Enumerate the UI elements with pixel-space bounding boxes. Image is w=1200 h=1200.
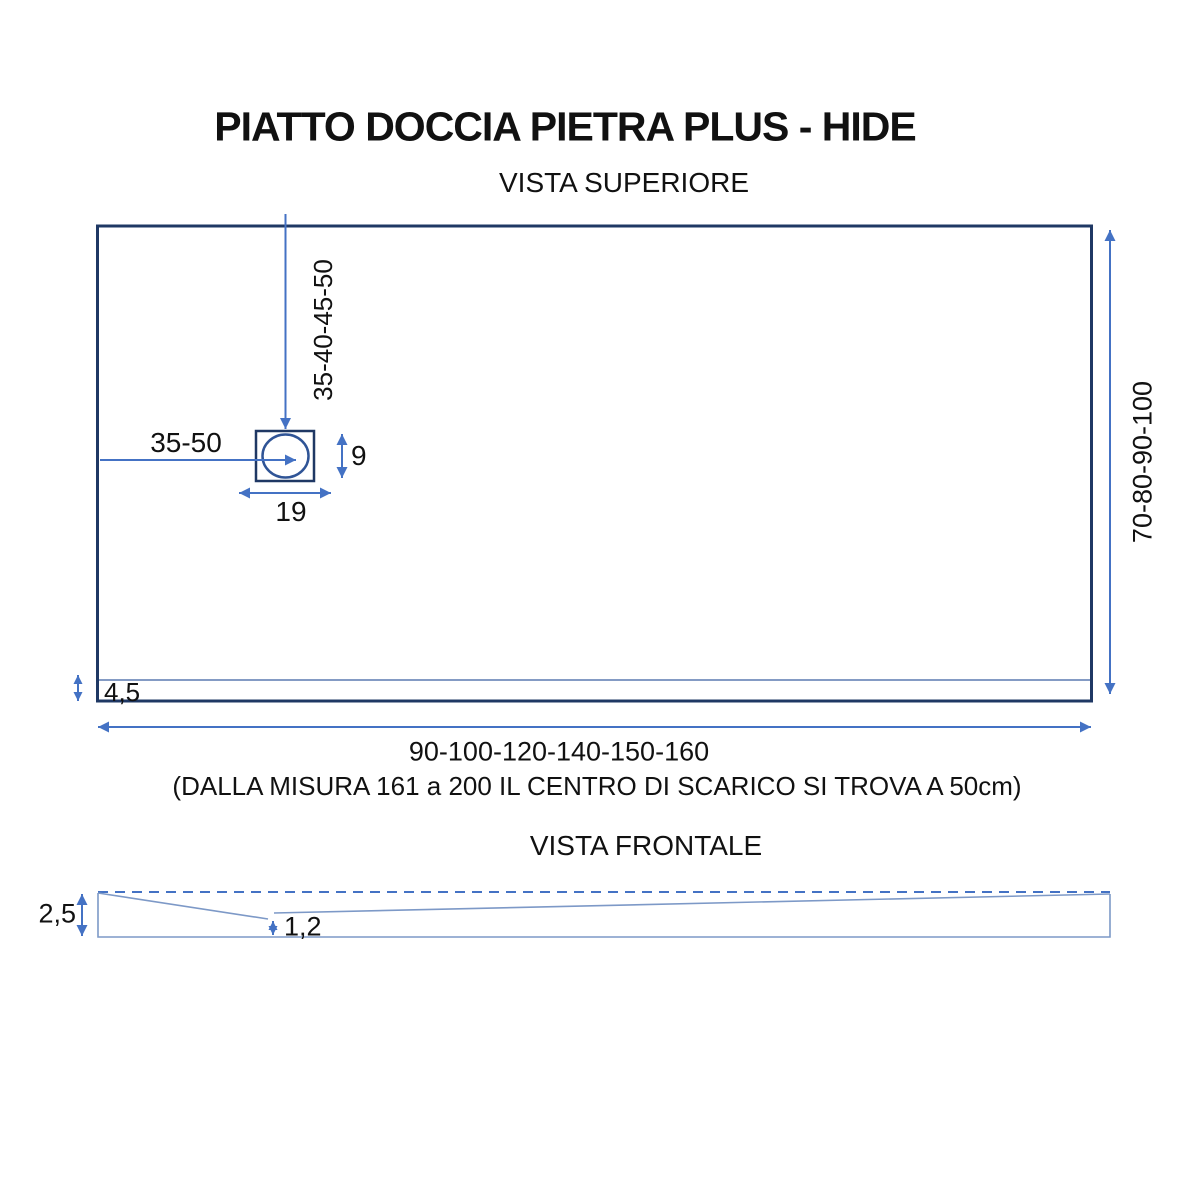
dim-label-drain-box-height: 9 xyxy=(351,442,367,470)
drain-position-note: (DALLA MISURA 161 a 200 IL CENTRO DI SCA… xyxy=(172,773,1021,799)
page-title: PIATTO DOCCIA PIETRA PLUS - HIDE xyxy=(214,107,915,148)
technical-drawing-page: PIATTO DOCCIA PIETRA PLUS - HIDE VISTA S… xyxy=(0,0,1200,1200)
dim-label-edge-thickness: 2,5 xyxy=(38,901,76,928)
dim-label-drain-box-width: 19 xyxy=(275,498,306,526)
front-view-right-slope xyxy=(274,894,1110,913)
front-view-left-slope xyxy=(98,893,268,919)
dim-label-edge-band: 4,5 xyxy=(104,679,140,705)
dim-label-tray-depth: 70-80-90-100 xyxy=(1130,381,1157,543)
front-view-body-outline xyxy=(98,893,1110,937)
dim-label-drain-from-left: 35-50 xyxy=(150,429,222,457)
drain-square xyxy=(256,431,314,481)
dim-label-drain-thickness: 1,2 xyxy=(284,914,322,941)
top-view-tray-outline xyxy=(98,226,1092,701)
dim-label-drain-from-top: 35-40-45-50 xyxy=(310,259,336,401)
top-view-heading: VISTA SUPERIORE xyxy=(499,169,749,197)
front-view-heading: VISTA FRONTALE xyxy=(530,832,762,860)
dim-label-tray-widths: 90-100-120-140-150-160 xyxy=(409,739,709,766)
